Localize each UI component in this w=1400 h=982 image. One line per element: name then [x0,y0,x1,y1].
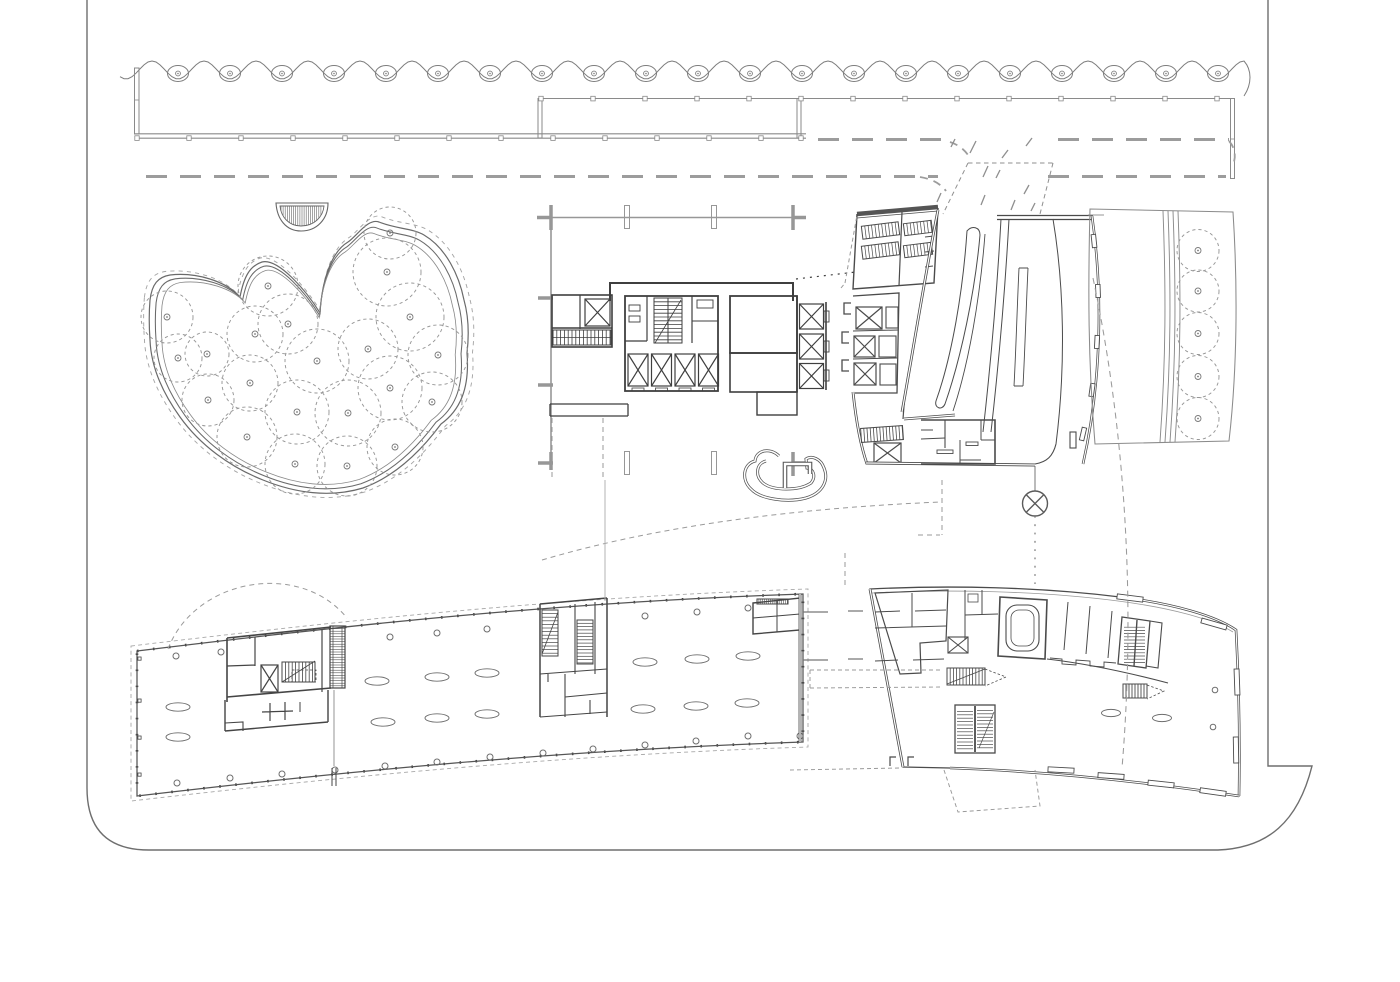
hedge-shelter [276,203,328,231]
tower-plan [537,205,856,476]
wave-canopy [120,61,1250,96]
survey-marker [1023,466,1048,584]
tree-grove [141,207,474,497]
southeast-building [790,587,1240,812]
site-walls [135,68,1235,179]
east-plaza [1088,209,1236,444]
east-building [841,207,1100,465]
page-border [87,0,1312,850]
site-plan-drawing [0,0,1400,982]
southwest-wing [131,583,808,801]
floor-plan-canvas [0,0,1400,982]
entry-ramp [937,138,1053,214]
guide-lines [542,278,1128,768]
road-dashes [146,140,1235,192]
spiral-ramp [745,451,826,500]
